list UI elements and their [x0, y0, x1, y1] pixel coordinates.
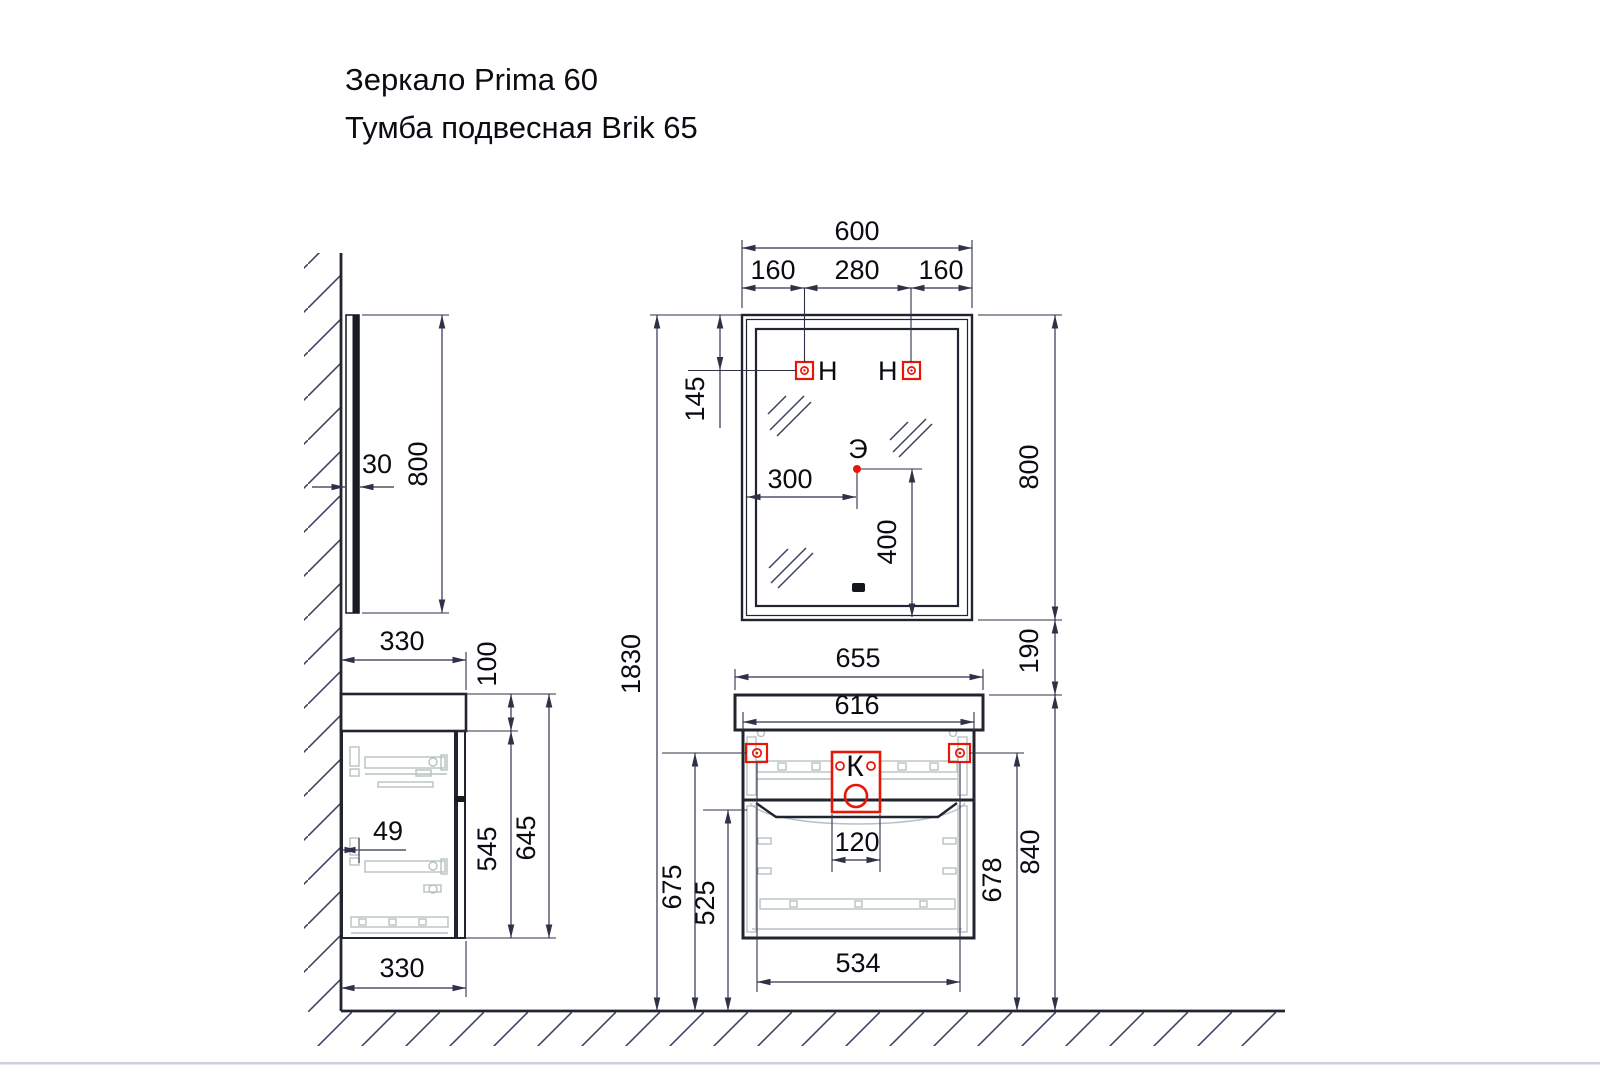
hanger-left-label: H	[818, 356, 838, 386]
dim-side-rail-offset: 49	[373, 816, 403, 846]
dim-side-basin-depth: 330	[379, 626, 424, 656]
hanger-point-right-icon	[903, 362, 920, 379]
dim-basin-width: 655	[835, 643, 880, 673]
drawing-page: Зеркало Prima 60 Тумба подвесная Brik 65…	[0, 0, 1600, 1071]
dim-mirror-height: 800	[1014, 444, 1044, 489]
dim-hole-center: 280	[834, 255, 879, 285]
socket-point-icon	[853, 465, 861, 473]
floor-hatch	[308, 1011, 1285, 1046]
dim-side-total-height: 645	[511, 815, 541, 860]
dim-hole-top-offset: 145	[680, 376, 710, 421]
dim-bracket-span: 534	[835, 948, 880, 978]
dim-floor-to-right-bracket: 678	[977, 857, 1007, 902]
dim-socket-from-bottom: 400	[872, 519, 902, 564]
dim-total-height: 1830	[616, 634, 646, 694]
wall-section	[304, 253, 341, 1011]
title-line-2: Тумба подвесная Brik 65	[345, 110, 698, 145]
dim-drain-width: 120	[834, 827, 879, 857]
dim-side-mirror-height: 800	[403, 441, 433, 486]
front-view-vanity: К 655 616 120 534 675 525 678	[657, 643, 1024, 1011]
page-bottom-rule	[0, 1062, 1600, 1065]
title-line-1: Зеркало Prima 60	[345, 62, 598, 97]
floor-section	[0, 1011, 1600, 1065]
front-view-mirror: H H Э 600 160 280 160 145 300	[650, 216, 972, 620]
dim-side-basin-height: 100	[472, 641, 502, 686]
dim-mirror-width: 600	[834, 216, 879, 246]
dim-hole-left: 160	[750, 255, 795, 285]
dim-side-cabinet-height: 545	[472, 826, 502, 871]
dim-side-mirror-thickness: 30	[362, 449, 392, 479]
wall-hatch	[304, 253, 341, 1011]
dim-hole-right: 160	[918, 255, 963, 285]
hanger-point-left-icon	[796, 362, 813, 379]
dim-cabinet-width: 616	[834, 690, 879, 720]
socket-label: Э	[848, 434, 867, 464]
side-view-vanity: 330 100 545 645 49 330	[341, 626, 556, 997]
dim-socket-from-left: 300	[767, 464, 812, 494]
hanger-right-label: H	[878, 356, 898, 386]
sensor-switch-icon	[852, 583, 865, 592]
door-front-side	[457, 731, 465, 938]
title-block: Зеркало Prima 60 Тумба подвесная Brik 65	[345, 62, 698, 145]
dim-gap-mirror-vanity: 190	[1014, 628, 1044, 673]
dim-side-bottom-depth: 330	[379, 953, 424, 983]
drain-label: К	[846, 750, 864, 783]
dim-floor-to-divider: 525	[690, 880, 720, 925]
dim-floor-to-basin-top: 840	[1015, 829, 1045, 874]
mirror-glass-bar	[353, 315, 360, 613]
dim-floor-to-left-bracket: 675	[657, 864, 687, 909]
basin-slab-side	[341, 694, 466, 731]
technical-drawing: Зеркало Prima 60 Тумба подвесная Brik 65…	[0, 0, 1600, 1071]
drawer-gap-mark	[455, 796, 466, 802]
